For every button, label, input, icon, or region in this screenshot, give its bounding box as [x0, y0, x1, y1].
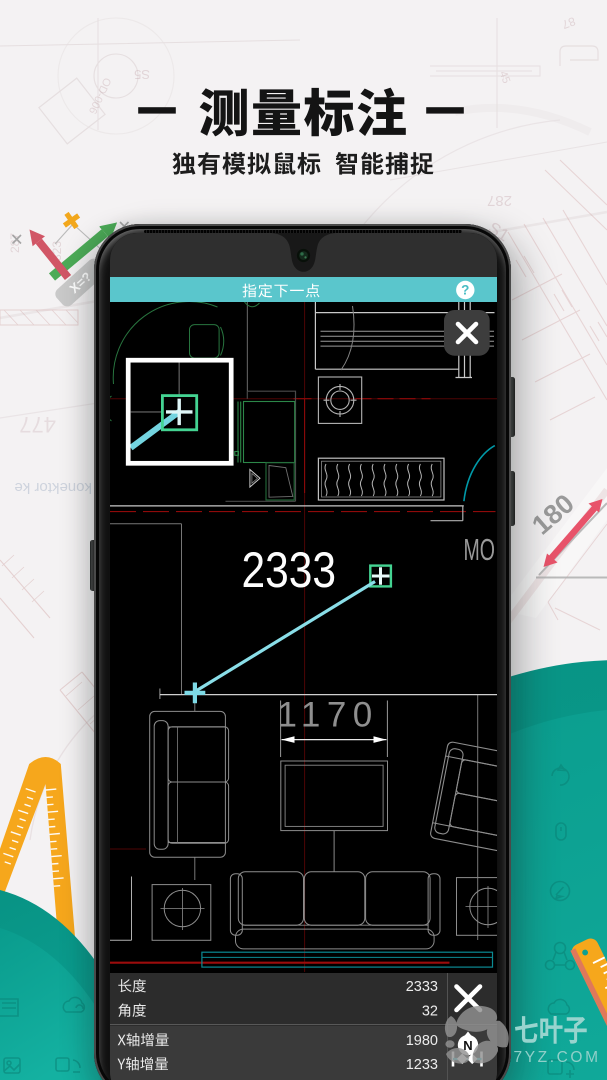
svg-text:7YZ.COM: 7YZ.COM: [514, 1049, 601, 1066]
svg-text:MO: MO: [463, 534, 494, 568]
svg-text:?: ?: [461, 283, 469, 298]
svg-text:2333: 2333: [241, 542, 336, 598]
svg-text:1170: 1170: [277, 696, 378, 735]
svg-text:2333: 2333: [405, 979, 437, 995]
